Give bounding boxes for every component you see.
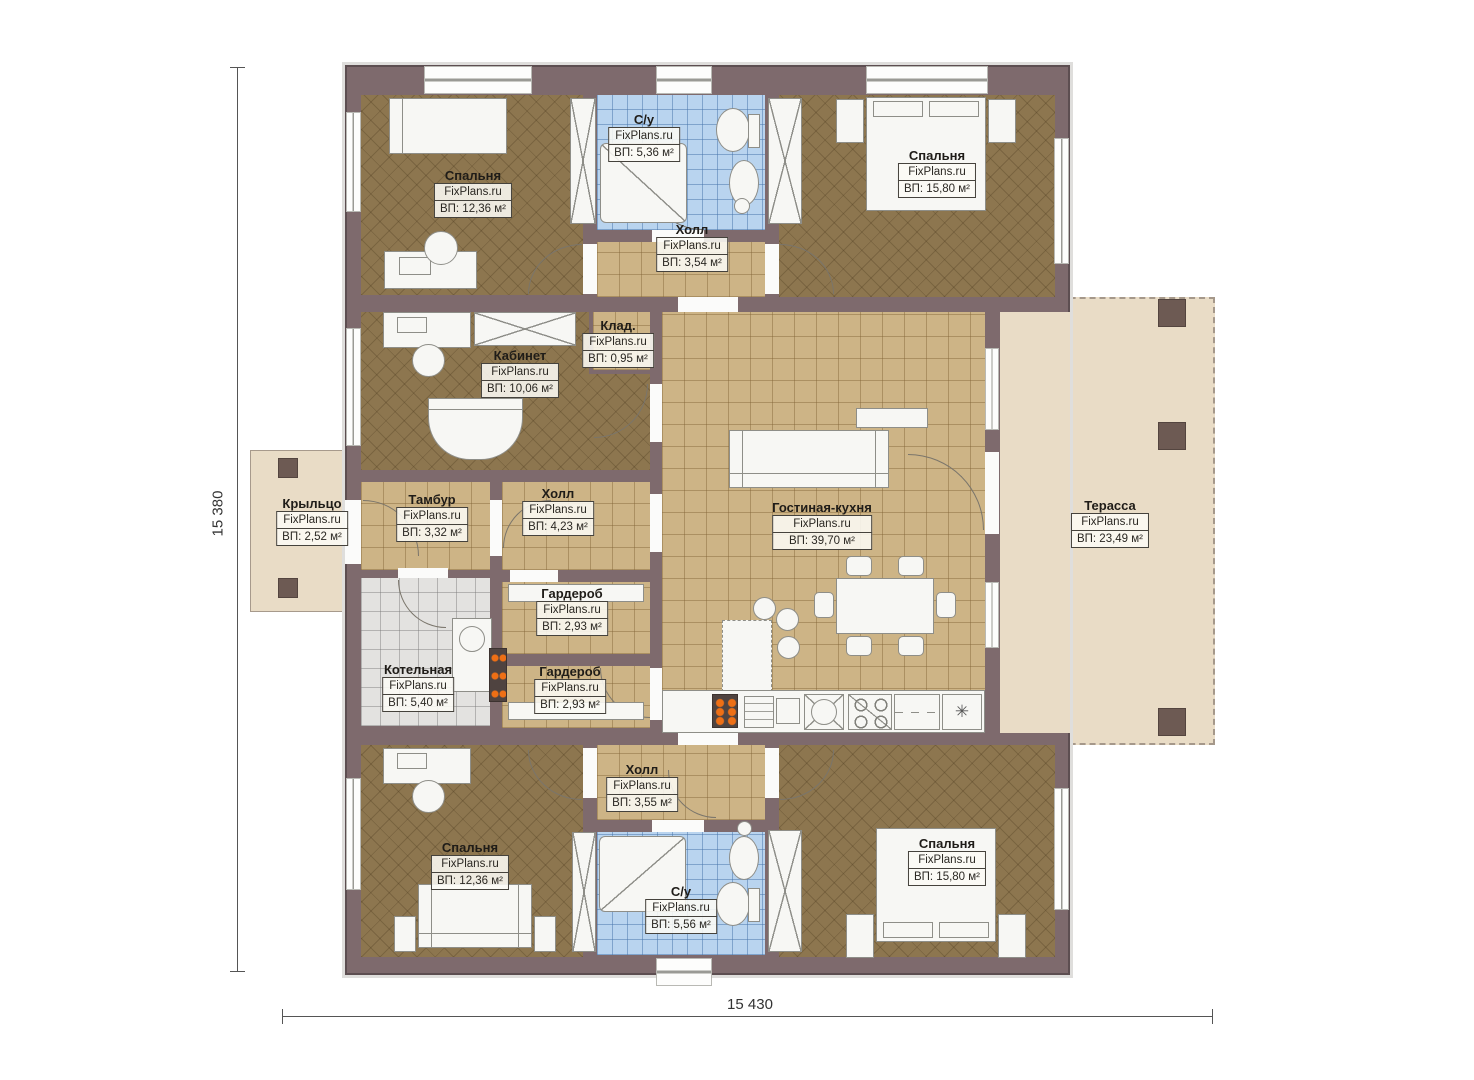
window — [656, 958, 712, 986]
office-chair — [412, 780, 445, 813]
terrace-post — [1158, 708, 1186, 736]
pillow — [939, 922, 989, 938]
pillow — [929, 101, 979, 117]
wardrobe-cabinet — [572, 832, 596, 952]
dining-chair — [814, 592, 834, 618]
dimension-line-bottom — [282, 1016, 1213, 1017]
wardrobe-cabinet — [474, 312, 576, 346]
window — [346, 328, 361, 446]
window — [656, 66, 712, 94]
single-bed — [389, 98, 507, 154]
nightstand — [988, 99, 1016, 143]
room-label-vestibule: Тамбур FixPlans.ru ВП: 3,32 м² — [396, 492, 468, 542]
terrace-post — [1158, 299, 1186, 327]
dimension-label-left: 15 380 — [210, 474, 227, 554]
terrace-deck — [1000, 312, 1070, 733]
room-label-office: Кабинет FixPlans.ru ВП: 10,06 м² — [481, 348, 559, 398]
nightstand — [846, 914, 874, 958]
pillow — [873, 101, 923, 117]
bar-stool — [776, 608, 799, 631]
room-label-terrace: Терасса FixPlans.ru ВП: 23,49 м² — [1071, 498, 1149, 548]
floor-plan-canvas: 15 380 15 430 — [0, 0, 1474, 1080]
door-opening — [765, 748, 779, 798]
side-table — [394, 916, 416, 952]
boiler-dial — [459, 626, 485, 652]
window — [985, 582, 999, 648]
dimension-label-bottom: 15 430 — [700, 996, 800, 1013]
room-label-wardrobe-lower: Гардероб FixPlans.ru ВП: 2,93 м² — [534, 664, 606, 714]
dining-chair — [898, 636, 924, 656]
printer — [399, 257, 431, 275]
wardrobe-cabinet — [768, 830, 802, 952]
room-label-hall-top: Холл FixPlans.ru ВП: 3,54 м² — [656, 222, 728, 272]
console-table — [856, 408, 928, 428]
porch-post — [278, 458, 298, 478]
room-label-bedroom-top-left: Спальня FixPlans.ru ВП: 12,36 м² — [434, 168, 512, 218]
door-opening-terrace — [985, 452, 999, 534]
door-opening — [398, 568, 448, 578]
pillow — [883, 922, 933, 938]
printer — [397, 317, 427, 333]
sink-bowl — [811, 699, 837, 725]
room-label-living-kitchen: Гостиная-кухня FixPlans.ru ВП: 39,70 м² — [772, 500, 872, 550]
window — [1054, 138, 1069, 264]
bar-stool — [753, 597, 776, 620]
door-opening — [490, 500, 502, 556]
toilet — [716, 882, 750, 926]
window — [1054, 788, 1069, 910]
room-label-bedroom-bottom-right: Спальня FixPlans.ru ВП: 15,80 м² — [908, 836, 986, 886]
dining-table — [836, 578, 934, 634]
door-opening — [510, 570, 558, 582]
toilet — [716, 108, 750, 152]
kitchen-cabinet — [776, 698, 800, 724]
dining-chair — [846, 636, 872, 656]
door-opening — [678, 297, 738, 312]
door-opening — [678, 733, 738, 745]
office-chair — [424, 231, 458, 265]
sofa — [729, 430, 889, 488]
door-opening — [765, 244, 779, 294]
dishwasher — [744, 696, 774, 728]
door-opening — [652, 820, 704, 832]
dimension-tick — [230, 67, 245, 68]
window — [866, 66, 988, 94]
door-opening — [583, 748, 597, 798]
dimension-tick — [230, 971, 245, 972]
wardrobe-cabinet — [768, 98, 802, 224]
window — [346, 778, 361, 890]
stove — [848, 694, 892, 730]
bar-stool — [777, 636, 800, 659]
dining-chair — [936, 592, 956, 618]
dining-chair — [846, 556, 872, 576]
terrace-post — [1158, 422, 1186, 450]
dimension-line-left — [237, 68, 238, 972]
room-label-boiler: Котельная FixPlans.ru ВП: 5,40 м² — [382, 662, 454, 712]
window — [985, 348, 999, 430]
door-opening — [583, 244, 597, 294]
printer — [397, 753, 427, 769]
side-table — [534, 916, 556, 952]
room-label-porch: Крыльцо FixPlans.ru ВП: 2,52 м² — [276, 496, 348, 546]
room-label-wardrobe-upper: Гардероб FixPlans.ru ВП: 2,93 м² — [536, 586, 608, 636]
window — [424, 66, 532, 94]
sofa — [418, 884, 532, 948]
dimension-tick — [282, 1009, 283, 1024]
radiator — [489, 648, 507, 702]
kitchen-counter-section — [894, 694, 940, 730]
room-label-storage: Клад. FixPlans.ru ВП: 0,95 м² — [582, 318, 654, 368]
toilet-tank — [748, 888, 760, 922]
door-opening — [650, 384, 662, 442]
floor-drain — [734, 198, 750, 214]
kitchen-island — [722, 620, 772, 692]
toilet-tank — [748, 114, 760, 148]
nightstand — [998, 914, 1026, 958]
radiator — [712, 694, 738, 728]
porch-post — [278, 578, 298, 598]
dining-chair — [898, 556, 924, 576]
room-label-bathroom-bottom: С/у FixPlans.ru ВП: 5,56 м² — [645, 884, 717, 934]
door-opening — [650, 494, 662, 552]
room-label-bedroom-bottom-left: Спальня FixPlans.ru ВП: 12,36 м² — [431, 840, 509, 890]
dimension-tick — [1212, 1009, 1213, 1024]
door-opening — [650, 668, 662, 720]
office-chair — [412, 344, 445, 377]
fridge: ✳ — [942, 694, 982, 730]
window — [346, 112, 361, 212]
wardrobe-cabinet — [570, 98, 596, 224]
nightstand — [836, 99, 864, 143]
room-label-hall-middle: Холл FixPlans.ru ВП: 4,23 м² — [522, 486, 594, 536]
washbasin — [729, 836, 759, 880]
room-label-bedroom-top-right: Спальня FixPlans.ru ВП: 15,80 м² — [898, 148, 976, 198]
room-label-bathroom-top: С/у FixPlans.ru ВП: 5,36 м² — [608, 112, 680, 162]
floor-drain — [737, 821, 752, 836]
room-label-hall-bottom: Холл FixPlans.ru ВП: 3,55 м² — [606, 762, 678, 812]
